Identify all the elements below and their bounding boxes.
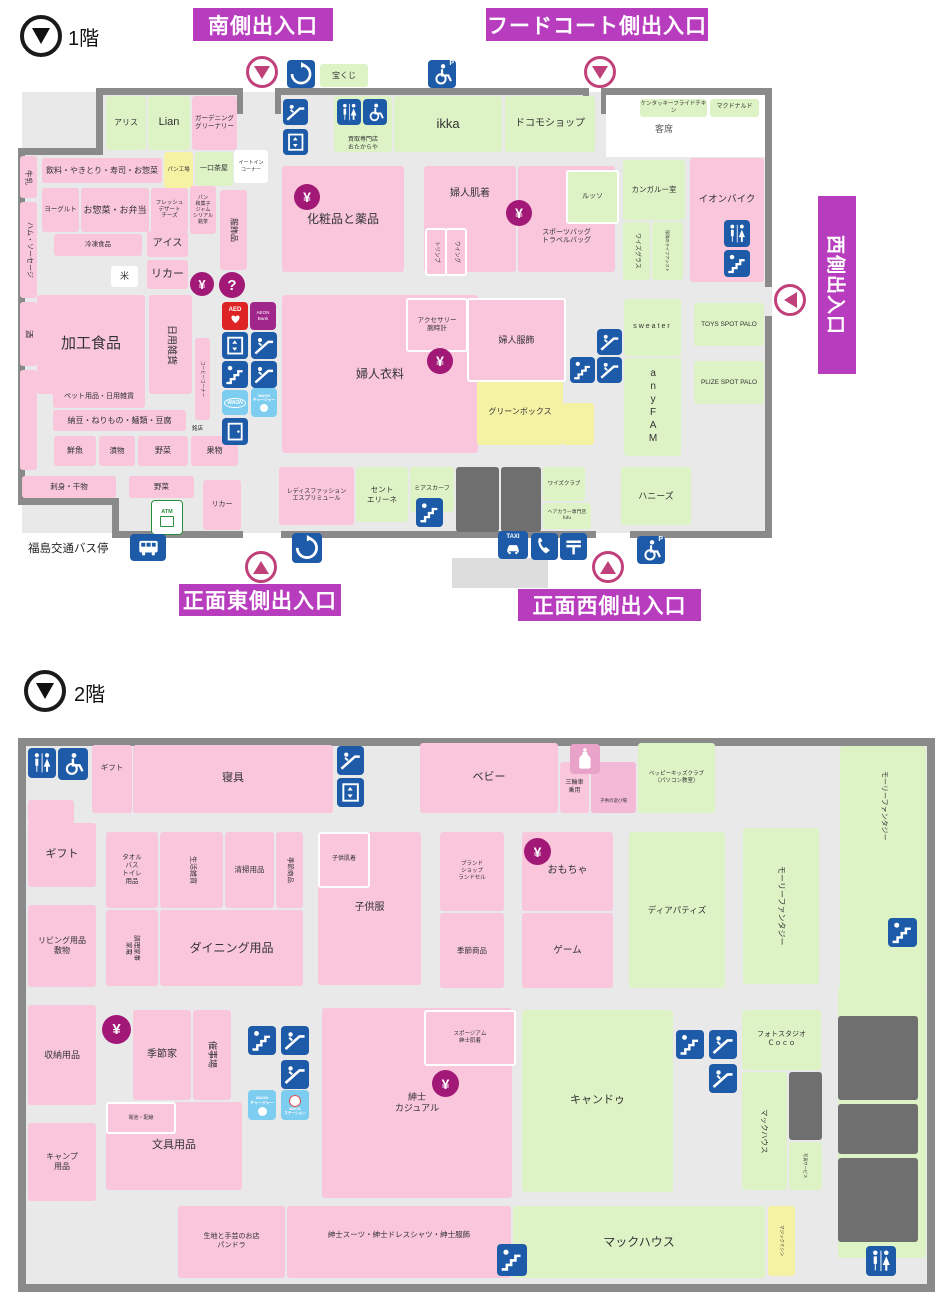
shop-sweater: sweater: [624, 299, 681, 356]
shop-saint-eline: セント エリーネ: [356, 467, 408, 522]
restroom-icon: [866, 1246, 896, 1276]
shop-bread-factory: パン工場: [164, 152, 193, 188]
shop-pickles: 漬物: [99, 436, 135, 466]
shop-ice: アイス: [147, 231, 188, 257]
register-yen-icon: ¥: [432, 1070, 459, 1097]
shop-takarakuji: 宝くじ: [320, 64, 368, 87]
information-icon: ?: [219, 272, 245, 298]
coin-locker-icon: [222, 418, 248, 445]
waon-charger-icon: WAON チャージャー: [248, 1090, 276, 1120]
shop-spogym-mens-underwear: スポージアム 紳士肌着: [424, 1010, 516, 1066]
shop-sake: 酒: [20, 302, 37, 366]
corridor-strip: [452, 558, 548, 588]
bus-icon: [130, 534, 166, 561]
eat-in-corner: イートイン コーナー: [234, 150, 268, 183]
shop-storage: 収納用品: [28, 1005, 96, 1105]
stairs-icon: [724, 250, 750, 277]
wheelchair-parking-icon: P: [637, 536, 665, 564]
shop-ham-sausage: ハム・ソーセージ: [20, 202, 37, 298]
shop-triumph: トリンプ: [425, 228, 447, 276]
restroom-icon: [337, 99, 361, 125]
mall-floor-map: 1階 南側出入口 フードコート側出入口 宝くじ P アリス Lian ガーデニン…: [0, 0, 940, 1310]
backyard-area: [838, 1016, 918, 1100]
elevator-icon: [337, 778, 364, 807]
shop-mcdonalds: マクドナルド: [710, 99, 759, 117]
shop-pet-daily: ペット用品・日用雑貨: [53, 386, 145, 408]
shop-seasonal-goods-2: 季節商品: [440, 913, 504, 988]
shop-gardening-greenery: ガーデニング グリーナリー: [192, 96, 237, 150]
atm-icon: ATM: [151, 500, 183, 535]
escalator-icon: [709, 1064, 737, 1093]
shop-processed-food: 加工食品: [37, 295, 145, 394]
escalator-icon: [597, 329, 622, 355]
recycle-icon: [292, 533, 322, 563]
shop-ikka: ikka: [394, 96, 502, 152]
taxi-stand-icon: TAXI: [498, 531, 528, 559]
shop-strip: [28, 800, 74, 824]
shop-hitokuchi-chaya: 一口茶屋: [195, 152, 233, 186]
shop-toys-spot-palo: TOYS SPOT PALO: [694, 303, 764, 346]
bus-stop-label: 福島交通バス停: [28, 540, 109, 556]
wheelchair-icon: [363, 99, 387, 125]
shop-pandora-fabric: 生地と手芸のお店 パンドラ: [178, 1206, 285, 1278]
escalator-icon: [283, 99, 308, 125]
shop-kangaroo-room: カンガルー室: [623, 160, 685, 220]
floor1-label: 1階: [68, 22, 99, 51]
shop-accessory-watch: アクセサリー 腕時計: [406, 298, 468, 352]
compass-icon: [20, 15, 62, 57]
event-space: 催事場: [193, 1010, 231, 1100]
shop-fujin-fukushoku: 婦人服飾: [467, 298, 566, 382]
shop-mac-house: マックハウス: [513, 1206, 765, 1278]
shop-beppy-kids-club: ベッピーキッズクラブ （パソコン教室）: [638, 743, 715, 813]
shop-sashimi: 刺身・干物: [22, 476, 116, 498]
shop-photo-service: 写真サービス: [789, 1142, 822, 1190]
entrance-marker-south-icon: [246, 56, 278, 88]
shop-kitchen-appliances: 調理家事 家電: [106, 910, 158, 986]
shop-ys-club: ワイズクラブ: [543, 467, 585, 501]
wheelchair-parking-icon: P: [428, 60, 456, 88]
register-yen-icon: ¥: [294, 184, 320, 210]
shop-cosmetics-medicine: 化粧品と薬品: [282, 166, 404, 272]
public-phone-icon: [531, 533, 558, 560]
stairs-icon: [248, 1026, 276, 1055]
aed-icon: AED: [222, 302, 248, 330]
escalator-icon: [337, 746, 364, 775]
waon-icon: WAON: [222, 390, 248, 415]
shop-baby: ベビー: [420, 743, 558, 813]
shop-frozen-food: 冷凍食品: [54, 234, 142, 256]
entrance-marker-front-east-icon: [245, 551, 277, 583]
register-yen-icon: ¥: [102, 1015, 131, 1044]
banner-foodcourt-entrance: フードコート側出入口: [486, 8, 708, 41]
escalator-icon: [251, 332, 277, 359]
shop-dear-patties: ディアパティズ: [629, 832, 725, 988]
shop-fukushokuhin: 服飾品: [220, 190, 247, 270]
aeon-bank-icon: AEON Bank: [250, 302, 276, 330]
shop-kids-underwear: 子供肌着: [318, 832, 370, 888]
stairs-icon: [416, 498, 443, 527]
shop-seikatsu-zakka: 生活雑貨: [160, 832, 223, 908]
banner-front-east-entrance: 正面東側出入口: [179, 584, 341, 616]
shop-fresh-fish: 鮮魚: [54, 436, 96, 466]
elevator-icon: [222, 332, 248, 359]
coffee-corner: コーヒーコーナー: [195, 338, 210, 420]
shop-bedding: 寝具: [133, 745, 333, 813]
shop-drinks-yakitori: 飲料・やきとり・寿司・お惣菜: [42, 158, 162, 183]
register-yen-icon: ¥: [506, 200, 532, 226]
banner-south-entrance: 南側出入口: [193, 8, 333, 41]
shop-milk: 牛乳: [20, 156, 37, 198]
backyard-area: [456, 467, 499, 532]
wheelchair-icon: [58, 748, 88, 780]
shop-cando: キャンドゥ: [522, 1010, 673, 1192]
waon-charger-icon: WAON チャージャー: [251, 388, 277, 417]
stairs-icon: [222, 361, 248, 388]
stairs-icon: [888, 918, 917, 947]
entrance-marker-front-west-icon: [592, 551, 624, 583]
shop-docomo: ドコモショップ: [505, 96, 595, 152]
shop-green-box: グリーンボックス: [477, 378, 563, 445]
waon-station-icon: WAON ステーション: [281, 1090, 309, 1120]
escalator-icon: [709, 1030, 737, 1059]
shop-rice: 米: [111, 266, 138, 287]
shop-liquor-2: リカー: [203, 480, 241, 530]
shop-osozai-obento: お惣菜・お弁当: [81, 188, 149, 232]
shop-living-rugs: リビング用品 敷物: [28, 905, 96, 987]
floor2-label: 2階: [74, 678, 105, 707]
register-yen-icon: ¥: [524, 838, 551, 865]
meiten-label: 銘店: [192, 424, 203, 432]
shop-gift-small: ギフト: [92, 745, 132, 813]
shop-games: ゲーム: [522, 913, 613, 988]
shop-seasonal-goods: 季節商品: [276, 832, 303, 908]
shop-esprit-muuru: レディスファッション エスプリミュール: [279, 467, 354, 525]
shop-hoken-life-assist: 保険のライフアシスト: [652, 222, 683, 280]
shop-russo: ルッソ: [566, 170, 619, 224]
banner-front-west-entrance: 正面西側出入口: [518, 589, 701, 621]
shop-battery-wiring: 電池・配線: [106, 1102, 176, 1134]
entrance-marker-foodcourt-icon: [584, 56, 616, 88]
shop-plize-spot-palo: PLIZE SPOT PALO: [694, 361, 764, 404]
shop-honeys: ハニーズ: [621, 467, 691, 525]
shop-towel-bath-toilet: タオル バス トイレ 用品: [106, 832, 158, 908]
shop-molly-fantasy: モーリーファンタジー: [840, 746, 926, 988]
shop-daily-goods: 日用雑貨: [149, 295, 192, 394]
restroom-icon: [28, 748, 56, 778]
shop-mac-house-side: マックハウス: [742, 1072, 787, 1190]
register-yen-icon: ¥: [427, 348, 453, 374]
foodcourt-seats-label: 客席: [655, 122, 673, 135]
recycle-icon: [287, 60, 315, 88]
shop-anyfam: anyFAM: [624, 358, 681, 456]
post-office-icon: [560, 533, 587, 560]
shop-kisetsuya: 季節家: [133, 1010, 191, 1100]
shop-wing: ウイング: [445, 228, 467, 276]
backyard-area: [501, 467, 541, 532]
shop-vegetables-2: 野菜: [129, 476, 194, 498]
shop-bread-wagashi: パン 和菓子 ジャム シリアル 銘茶: [190, 186, 216, 234]
stairs-icon: [676, 1030, 704, 1059]
backyard-area: [789, 1072, 822, 1140]
shop-haircolor-fufu: ヘアカラー専門店 fufu: [543, 503, 591, 529]
shop-liquor: リカー: [147, 260, 188, 289]
shop-fresh-dessert-cheese: フレッシュ デザート チーズ: [151, 188, 188, 232]
shop-kfc: ケンタッキーフライドチキン: [640, 99, 707, 117]
banner-west-entrance: 西側出入口: [818, 196, 856, 374]
shop-molly-fantasy-2: モーリーファンタジー: [743, 828, 819, 984]
backyard-area: [838, 1158, 918, 1242]
shop-dining-goods: ダイニング用品: [160, 910, 303, 986]
escalator-icon: [597, 357, 622, 383]
entrance-marker-west-icon: [774, 284, 806, 316]
shop-mens-suits: 紳士スーツ・紳士ドレスシャツ・紳士服飾: [287, 1206, 511, 1278]
stairs-icon: [570, 357, 595, 383]
escalator-icon: [281, 1060, 309, 1089]
shop-cleaning: 清掃用品: [225, 832, 274, 908]
shop-strip: [20, 370, 37, 470]
escalator-icon: [281, 1026, 309, 1055]
stairs-icon: [497, 1244, 527, 1276]
shop-lian: Lian: [148, 96, 190, 150]
shop-green-box-annex: [563, 403, 594, 445]
shop-gift: ギフト: [28, 823, 96, 887]
baby-bottle-icon: [570, 744, 600, 774]
shop-photo-studio-coco: フォトスタジオ Ｃｏｃｏ: [742, 1010, 821, 1070]
restroom-icon: [724, 220, 750, 247]
elevator-icon: [283, 129, 308, 155]
atm-yen-icon: ¥: [190, 272, 214, 296]
shop-yogurt: ヨーグルト: [42, 188, 79, 232]
escalator-icon: [251, 361, 277, 388]
shop-brand-randoseru: ブランド ショップ ランドセル: [440, 832, 504, 911]
compass-icon: [24, 670, 66, 712]
shop-camp: キャンプ 用品: [28, 1123, 96, 1201]
backyard-area: [838, 1104, 918, 1154]
shop-vegetables: 野菜: [138, 436, 188, 466]
shop-natto-noodles: 納豆・ねりもの・麺類・豆腐: [53, 410, 186, 431]
shop-ys-glass: ワイズグラス: [623, 222, 650, 280]
shop-magic-mishin: マジックミシン: [768, 1206, 795, 1276]
shop-arisu: アリス: [106, 96, 146, 150]
